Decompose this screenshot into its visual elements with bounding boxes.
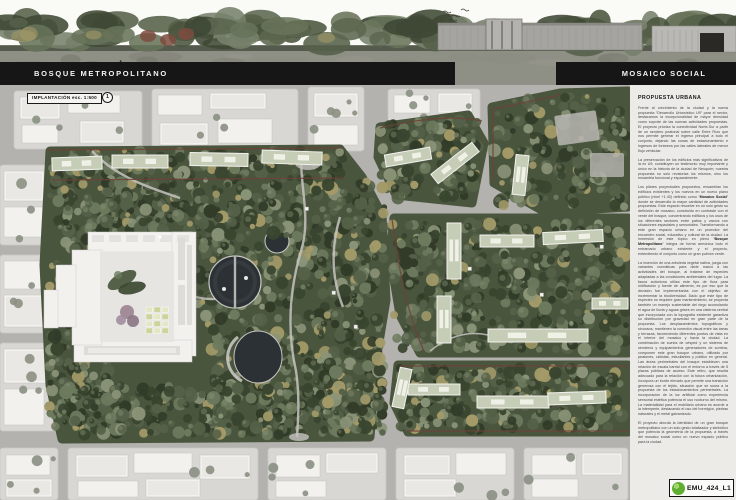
emu-logo-icon xyxy=(672,482,685,495)
site-plan-render xyxy=(0,85,630,500)
plan-reference-marker: 1 xyxy=(102,92,113,103)
panel-paragraph: Frente al crecimiento de la ciudad y la … xyxy=(638,106,728,153)
panel-heading: PROPUESTA URBANA xyxy=(638,95,728,101)
panel-paragraph: El proyecto aborda la identidad de un gr… xyxy=(638,421,728,445)
title-left-text: BOSQUE METROPOLITANO xyxy=(34,69,168,78)
plan-marker-number: 1 xyxy=(106,95,109,100)
sheet-code-text: EMU_424_L1 xyxy=(687,485,731,492)
title-bar-right: MOSAICO SOCIAL xyxy=(556,62,736,85)
panel-paragraphs: Frente al crecimiento de la ciudad y la … xyxy=(638,106,728,445)
panel-paragraph: La inserción de una arboleda vegetal nat… xyxy=(638,261,728,417)
title-bar-left: BOSQUE METROPOLITANO xyxy=(0,62,455,85)
plan-scale-label: IMPLANTACIÓN esc. 1:500 xyxy=(27,93,102,104)
presentation-board: BOSQUE METROPOLITANO MOSAICO SOCIAL IMPL… xyxy=(0,0,736,500)
text-panel: PROPUESTA URBANA Frente al crecimiento d… xyxy=(630,85,736,500)
title-right-text: MOSAICO SOCIAL xyxy=(622,69,706,78)
panel-paragraph: La preservación de los edificios más sig… xyxy=(638,158,728,182)
plan-scale-text: IMPLANTACIÓN esc. 1:500 xyxy=(32,95,97,100)
panel-paragraph: Los pilares proyectuales propuestos, ens… xyxy=(638,185,728,256)
sheet-code-box: EMU_424_L1 xyxy=(669,479,734,497)
